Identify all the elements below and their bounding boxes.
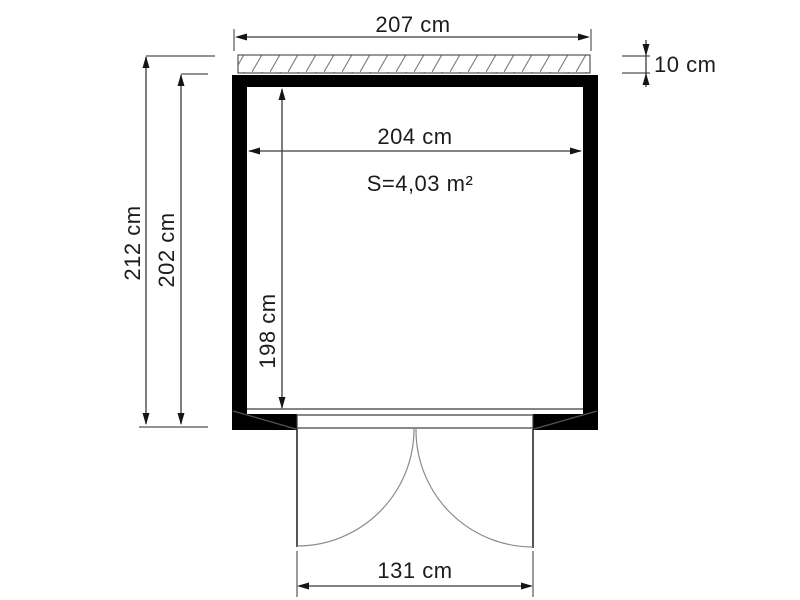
- dimension-label-roof-width: 207 cm: [375, 12, 450, 37]
- dimension-label-roof-depth: 10 cm: [654, 52, 716, 77]
- drawing-background: [0, 0, 800, 600]
- door-threshold-strip: [297, 415, 533, 428]
- dimension-label-door-width: 131 cm: [377, 558, 452, 583]
- wall-top: [232, 75, 598, 87]
- wall-left: [232, 75, 247, 430]
- wall-bottom-left-segment: [232, 414, 297, 430]
- dimension-label-inner-depth: 198 cm: [255, 293, 280, 368]
- technical-drawing-page: 207 cm 10 cm 204 cm S=4,03 m² 212 cm 202…: [0, 0, 800, 600]
- wall-bottom-right-segment: [533, 414, 598, 430]
- dimension-label-inner-width: 204 cm: [377, 124, 452, 149]
- dimension-label-total-height: 212 cm: [120, 205, 145, 280]
- shed-floor-plan-canvas: 207 cm 10 cm 204 cm S=4,03 m² 212 cm 202…: [0, 0, 800, 600]
- dimension-label-wall-height: 202 cm: [154, 212, 179, 287]
- wall-right: [583, 75, 598, 430]
- floor-area-label: S=4,03 m²: [367, 171, 474, 196]
- roof-hatch-strip: [238, 55, 590, 73]
